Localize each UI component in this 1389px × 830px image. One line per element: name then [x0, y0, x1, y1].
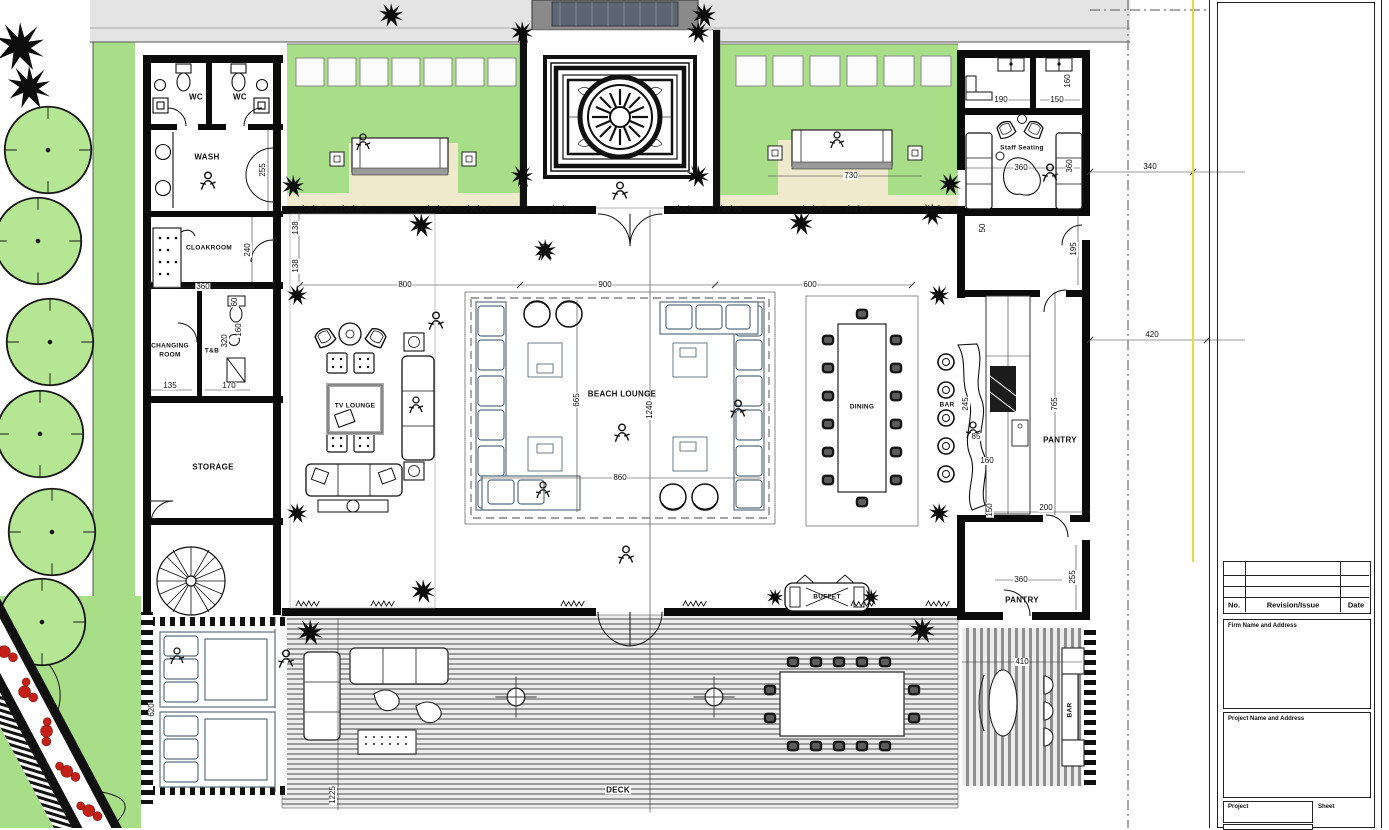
room-label-tb: T&B	[205, 347, 219, 354]
dim-wash-height: 255	[259, 162, 267, 177]
firm-label: Firm Name and Address	[1228, 623, 1297, 629]
boundary-lines	[1090, 0, 1209, 828]
dim-bar-245: 245	[962, 396, 970, 411]
room-label-pantry-lower: PANTRY	[1005, 595, 1039, 604]
revision-no-header: No.	[1228, 601, 1240, 610]
project-name-label: Project Name and Address	[1228, 716, 1304, 722]
sheet-label: Sheet	[1318, 804, 1334, 810]
dim-hall-800: 800	[397, 281, 412, 289]
room-label-changing-1: CHANGING	[151, 342, 189, 349]
dim-tb-60: 60	[231, 297, 239, 308]
garden-left	[287, 44, 520, 206]
sheet-border-outer	[1209, 0, 1210, 828]
dim-room-160: 160	[1064, 73, 1072, 88]
room-label-buffet: BUFFET	[813, 593, 840, 600]
dim-staff-width: 360	[1013, 164, 1028, 172]
entry-foyer-medallion	[520, 30, 720, 208]
dim-deckbar-410: 410	[1014, 658, 1029, 666]
dim-cloak-width: 360	[195, 283, 210, 291]
dim-changing-width: 135	[162, 382, 177, 390]
room-label-staff-seating: Staff Seating	[1000, 144, 1044, 151]
room-label-storage: STORAGE	[192, 462, 234, 471]
cabana-daybeds	[141, 612, 287, 804]
dim-hall-1240: 1240	[646, 400, 654, 420]
room-label-pantry-upper: PANTRY	[1043, 435, 1077, 444]
room-label-tv-lounge: TV LOUNGE	[334, 402, 377, 409]
dim-wall-138a: 138	[292, 220, 300, 235]
deck-flooring	[282, 615, 1096, 808]
room-label-deck: DECK	[605, 785, 631, 794]
dim-bar-150: 150	[986, 502, 994, 517]
dim-garden-bench: 730	[843, 172, 858, 180]
tv-lounge-furniture	[290, 214, 435, 608]
bar-counter	[938, 344, 986, 510]
revision-issue-header: Revision/Issue	[1267, 601, 1320, 610]
dim-pantry-lower-255: 255	[1069, 569, 1077, 584]
dining-furniture	[806, 296, 918, 526]
floor-plan-sheet: WC WC WASH CLOAKROOM CHANGING ROOM T&B S…	[0, 0, 1389, 828]
dim-tb-width: 170	[221, 382, 236, 390]
dim-lounge-860: 860	[612, 474, 627, 482]
garden-right	[720, 44, 958, 206]
dim-bar-160: 160	[979, 457, 994, 465]
revision-date-header: Date	[1348, 601, 1364, 610]
room-label-beach-lounge: BEACH LOUNGE	[588, 389, 657, 398]
spiral-stair	[157, 547, 225, 615]
dim-tb-height: 320	[221, 333, 229, 348]
dim-hall-900: 900	[597, 281, 612, 289]
dim-room-190: 190	[993, 96, 1008, 104]
room-label-deck-bar: BAR	[1066, 702, 1073, 719]
pantry-kitchen	[986, 296, 1030, 514]
room-label-dining: DINING	[849, 403, 876, 410]
beach-lounge-furniture	[465, 292, 775, 524]
dim-pantry-765: 765	[1051, 396, 1059, 411]
dim-cabana-620: 620	[148, 702, 156, 717]
dim-cloak-height: 240	[244, 242, 252, 257]
room-label-bar: BAR	[939, 401, 956, 408]
dim-staff-50: 50	[979, 223, 987, 234]
dim-pantry-lower-360: 360	[1013, 576, 1028, 584]
sheet-border-right	[1381, 0, 1382, 828]
dim-wall-138b: 138	[292, 258, 300, 273]
revision-col-line-1	[1245, 561, 1246, 612]
dim-site-420: 420	[1144, 331, 1159, 339]
dim-staff-height: 360	[1066, 158, 1074, 173]
dim-deck-1225: 1225	[329, 785, 337, 805]
firm-box	[1223, 619, 1371, 709]
revision-col-line-2	[1340, 561, 1341, 612]
dim-site-340: 340	[1142, 163, 1157, 171]
room-label-wc-left: WC	[189, 92, 203, 101]
dim-room-150: 150	[1049, 96, 1064, 104]
dim-corridor-195: 195	[1070, 241, 1078, 256]
changing-tb-fixtures	[227, 296, 245, 382]
top-right-rooms	[966, 58, 1072, 100]
project-sub-box	[1223, 824, 1313, 830]
room-label-changing-2: ROOM	[159, 351, 180, 358]
room-label-wash: WASH	[194, 152, 219, 161]
site-landscaping	[0, 8, 145, 828]
dim-pantry-200: 200	[1038, 504, 1053, 512]
project-label: Project	[1228, 804, 1248, 810]
dim-bar-85: 85	[971, 433, 982, 441]
dim-tb-160: 160	[235, 322, 243, 337]
dim-hall-600: 600	[802, 281, 817, 289]
project-name-box	[1223, 712, 1371, 798]
plan-drawing	[0, 0, 1389, 828]
dim-lounge-665: 665	[573, 392, 581, 407]
room-label-cloakroom: CLOAKROOM	[186, 244, 232, 251]
room-label-wc-right: WC	[233, 92, 247, 101]
